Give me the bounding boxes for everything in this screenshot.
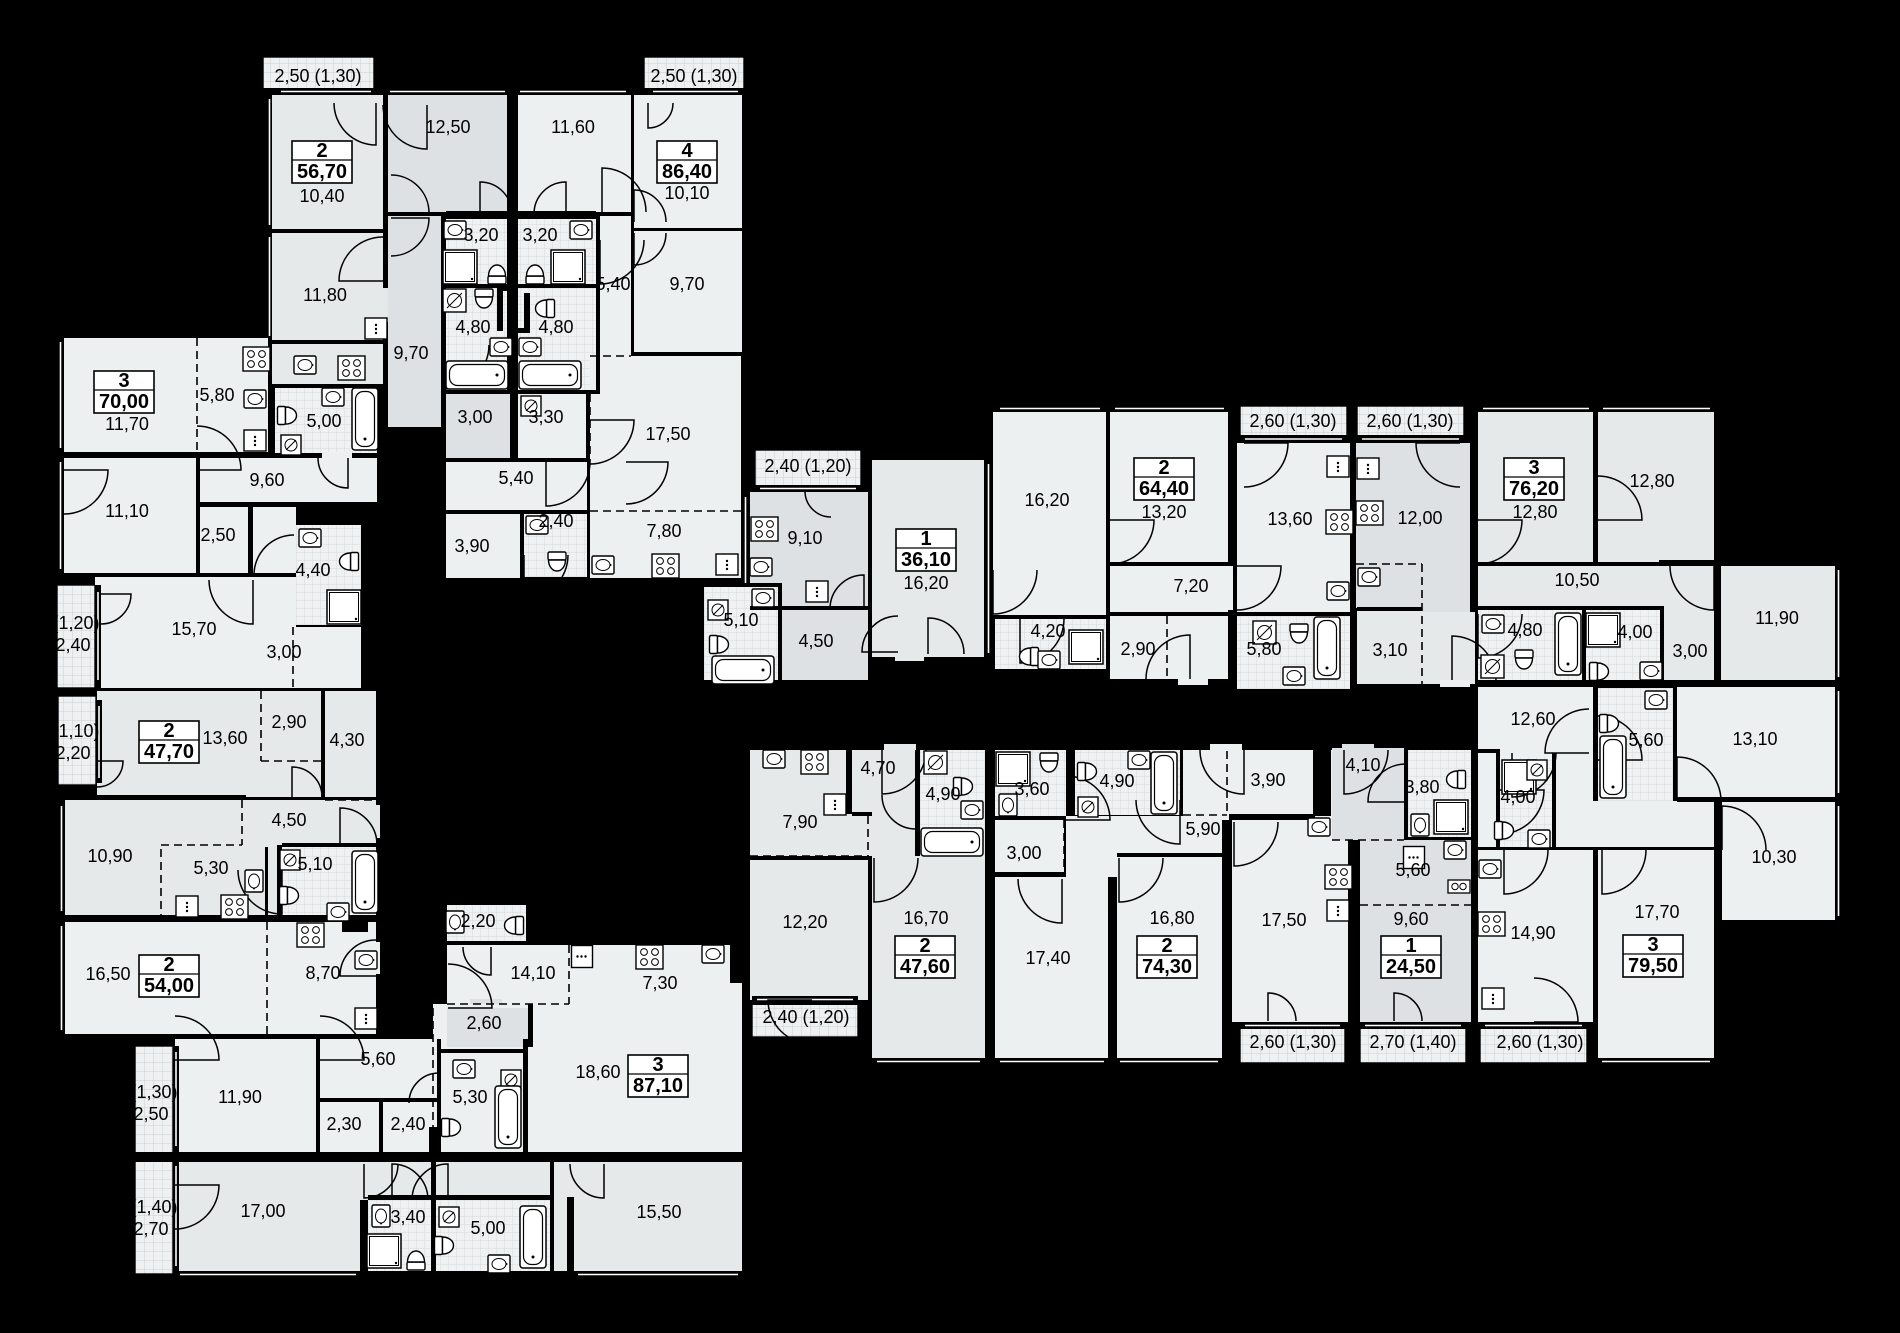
svg-text:4: 4 (681, 140, 693, 162)
svg-text:10,30: 10,30 (1751, 847, 1796, 867)
svg-text:9,70: 9,70 (393, 343, 428, 363)
svg-text:7,90: 7,90 (782, 812, 817, 832)
svg-text:2,50: 2,50 (133, 1104, 168, 1124)
svg-text:11,90: 11,90 (218, 1087, 262, 1107)
svg-text:2: 2 (163, 720, 174, 742)
svg-text:5,90: 5,90 (1185, 819, 1220, 839)
svg-text:2,60 (1,30): 2,60 (1,30) (1366, 411, 1453, 431)
svg-text:2,60 (1,30): 2,60 (1,30) (1249, 411, 1336, 431)
svg-text:2,20: 2,20 (460, 911, 495, 931)
svg-text:3: 3 (118, 370, 129, 392)
svg-text:12,60: 12,60 (1510, 709, 1555, 729)
svg-text:4,10: 4,10 (1345, 755, 1380, 775)
svg-text:5,60: 5,60 (1395, 860, 1430, 880)
svg-text:2: 2 (1161, 935, 1172, 957)
svg-text:17,70: 17,70 (1634, 902, 1679, 922)
svg-text:76,20: 76,20 (1509, 478, 1559, 500)
svg-text:4,30: 4,30 (329, 730, 364, 750)
svg-text:12,50: 12,50 (425, 117, 470, 137)
svg-text:3,60: 3,60 (1014, 779, 1049, 799)
svg-text:3,90: 3,90 (1250, 770, 1285, 790)
svg-text:3,00: 3,00 (1672, 641, 1707, 661)
svg-text:2,70 (1,40): 2,70 (1,40) (1369, 1032, 1456, 1052)
svg-text:7,30: 7,30 (642, 973, 677, 993)
svg-text:12,80: 12,80 (1629, 471, 1674, 491)
svg-text:14,10: 14,10 (510, 963, 555, 983)
svg-text:2,60: 2,60 (466, 1013, 501, 1033)
svg-text:15,70: 15,70 (171, 619, 216, 639)
svg-text:3,20: 3,20 (463, 225, 498, 245)
svg-text:2,50 (1,30): 2,50 (1,30) (274, 66, 361, 86)
svg-text:4,00: 4,00 (1617, 622, 1652, 642)
svg-text:2,30: 2,30 (326, 1114, 361, 1134)
svg-text:3: 3 (1647, 934, 1658, 956)
svg-text:11,10: 11,10 (105, 501, 149, 521)
svg-text:2,50: 2,50 (200, 525, 235, 545)
svg-text:70,00: 70,00 (99, 391, 149, 413)
svg-text:12,20: 12,20 (782, 912, 827, 932)
svg-text:10,40: 10,40 (299, 186, 344, 206)
svg-text:4,90: 4,90 (1099, 771, 1134, 791)
svg-text:5,80: 5,80 (1246, 639, 1281, 659)
svg-text:86,40: 86,40 (662, 161, 712, 183)
svg-text:5,30: 5,30 (452, 1087, 487, 1107)
svg-text:5,00: 5,00 (470, 1218, 505, 1238)
svg-text:9,60: 9,60 (249, 470, 284, 490)
svg-text:4,70: 4,70 (860, 758, 895, 778)
svg-text:4,90: 4,90 (925, 784, 960, 804)
svg-text:3,40: 3,40 (390, 1207, 425, 1227)
svg-text:3,00: 3,00 (1006, 843, 1041, 863)
svg-text:87,10: 87,10 (633, 1075, 683, 1097)
svg-text:4,40: 4,40 (295, 560, 330, 580)
svg-text:5,80: 5,80 (199, 385, 234, 405)
svg-text:74,30: 74,30 (1142, 956, 1192, 978)
svg-text:14,90: 14,90 (1510, 923, 1555, 943)
svg-text:13,10: 13,10 (1732, 729, 1777, 749)
svg-text:18,60: 18,60 (575, 1062, 620, 1082)
svg-text:1: 1 (920, 528, 931, 550)
svg-text:17,40: 17,40 (1025, 948, 1070, 968)
svg-text:3,00: 3,00 (457, 407, 492, 427)
svg-text:5,00: 5,00 (306, 411, 341, 431)
svg-text:5,40: 5,40 (498, 468, 533, 488)
svg-text:47,60: 47,60 (900, 956, 950, 978)
svg-text:2,40 (1,20): 2,40 (1,20) (764, 456, 851, 476)
svg-text:17,50: 17,50 (645, 424, 690, 444)
svg-text:2: 2 (316, 140, 327, 162)
svg-text:2,90: 2,90 (1120, 639, 1155, 659)
svg-text:4,50: 4,50 (271, 810, 306, 830)
svg-text:3: 3 (652, 1054, 663, 1076)
svg-text:15,50: 15,50 (636, 1202, 681, 1222)
svg-text:(1,40): (1,40) (130, 1197, 177, 1217)
svg-text:5,40: 5,40 (595, 274, 630, 294)
svg-text:8,70: 8,70 (305, 963, 340, 983)
svg-text:7,20: 7,20 (1173, 576, 1208, 596)
svg-text:10,50: 10,50 (1554, 570, 1599, 590)
svg-text:36,10: 36,10 (901, 549, 951, 571)
svg-text:(1,30): (1,30) (130, 1082, 177, 1102)
svg-text:4,20: 4,20 (1030, 621, 1065, 641)
svg-text:9,60: 9,60 (1393, 909, 1428, 929)
svg-text:12,80: 12,80 (1512, 502, 1557, 522)
svg-text:56,70: 56,70 (297, 161, 347, 183)
svg-text:2: 2 (1158, 457, 1169, 479)
svg-text:5,60: 5,60 (360, 1049, 395, 1069)
svg-text:5,10: 5,10 (297, 854, 332, 874)
svg-text:16,70: 16,70 (903, 908, 948, 928)
svg-text:2: 2 (919, 935, 930, 957)
svg-text:79,50: 79,50 (1628, 955, 1678, 977)
svg-text:2,70: 2,70 (133, 1219, 168, 1239)
svg-text:17,00: 17,00 (240, 1201, 285, 1221)
svg-text:16,20: 16,20 (903, 573, 948, 593)
svg-text:11,80: 11,80 (303, 285, 347, 305)
svg-text:13,20: 13,20 (1141, 502, 1186, 522)
svg-text:3,20: 3,20 (522, 225, 557, 245)
svg-text:64,40: 64,40 (1139, 478, 1189, 500)
svg-text:4,80: 4,80 (1507, 620, 1542, 640)
svg-text:7,80: 7,80 (646, 521, 681, 541)
svg-text:11,90: 11,90 (1755, 608, 1799, 628)
svg-text:1: 1 (1405, 935, 1416, 957)
svg-text:3,90: 3,90 (454, 536, 489, 556)
svg-text:2,60 (1,30): 2,60 (1,30) (1496, 1032, 1583, 1052)
svg-text:2,40: 2,40 (538, 511, 573, 531)
svg-text:3,10: 3,10 (1372, 640, 1407, 660)
svg-text:(1,10): (1,10) (52, 721, 99, 741)
svg-text:10,90: 10,90 (87, 846, 132, 866)
svg-text:9,10: 9,10 (787, 528, 822, 548)
svg-text:4,80: 4,80 (538, 317, 573, 337)
svg-text:47,70: 47,70 (144, 741, 194, 763)
svg-text:17,50: 17,50 (1261, 910, 1306, 930)
svg-text:4,50: 4,50 (798, 631, 833, 651)
svg-text:16,50: 16,50 (85, 964, 130, 984)
svg-text:2: 2 (163, 954, 174, 976)
svg-text:12,00: 12,00 (1397, 508, 1442, 528)
svg-text:16,80: 16,80 (1149, 908, 1194, 928)
svg-text:2,90: 2,90 (271, 712, 306, 732)
svg-text:2,40 (1,20): 2,40 (1,20) (762, 1007, 849, 1027)
svg-text:5,30: 5,30 (193, 858, 228, 878)
svg-text:11,70: 11,70 (105, 414, 149, 434)
svg-text:3,80: 3,80 (1404, 777, 1439, 797)
svg-text:2,60 (1,30): 2,60 (1,30) (1249, 1032, 1336, 1052)
svg-text:5,60: 5,60 (1628, 730, 1663, 750)
svg-text:5,10: 5,10 (723, 610, 758, 630)
svg-text:9,70: 9,70 (669, 274, 704, 294)
svg-text:3,00: 3,00 (266, 642, 301, 662)
svg-text:54,00: 54,00 (144, 975, 194, 997)
svg-text:16,20: 16,20 (1024, 490, 1069, 510)
svg-text:2,50 (1,30): 2,50 (1,30) (650, 66, 737, 86)
svg-text:2,40: 2,40 (55, 635, 90, 655)
svg-text:2,40: 2,40 (390, 1114, 425, 1134)
svg-text:13,60: 13,60 (202, 728, 247, 748)
svg-text:3: 3 (1528, 457, 1539, 479)
svg-text:4,00: 4,00 (1500, 787, 1535, 807)
svg-text:4,80: 4,80 (455, 317, 490, 337)
svg-text:(1,20): (1,20) (52, 613, 99, 633)
svg-text:2,20: 2,20 (55, 743, 90, 763)
svg-text:24,50: 24,50 (1386, 956, 1436, 978)
svg-text:3,30: 3,30 (528, 407, 563, 427)
svg-text:13,60: 13,60 (1267, 509, 1312, 529)
svg-text:11,60: 11,60 (551, 117, 595, 137)
svg-text:10,10: 10,10 (664, 183, 709, 203)
